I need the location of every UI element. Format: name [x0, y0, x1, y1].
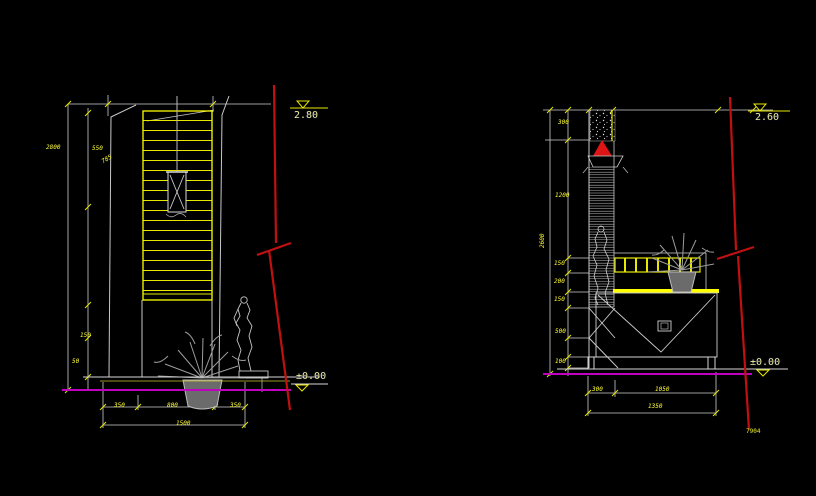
left-dim-total-height: 2800	[46, 145, 60, 151]
left-level-top-label: 2.80	[294, 111, 318, 121]
right-elevation	[543, 97, 790, 430]
right-dim-seg-7: 100	[555, 359, 566, 365]
left-level-top-symbol	[290, 101, 328, 108]
right-dim-seg-2: 1200	[555, 193, 569, 199]
left-dim-seg-a: 550	[92, 146, 103, 152]
counter-top	[613, 289, 719, 293]
plant-left	[154, 332, 246, 409]
right-dim-total-height: 2600	[540, 234, 546, 248]
right-level-floor-symbol	[757, 370, 769, 376]
right-dim-bottom-2: 1050	[655, 387, 669, 393]
cabinet-plinth	[588, 357, 715, 369]
left-dim-bottom-2: 800	[167, 403, 178, 409]
sheet-number: 7904	[746, 429, 760, 435]
left-level-floor-label: ±0.00	[296, 372, 326, 382]
left-dim-seg-d: 50	[72, 359, 79, 365]
cad-linework	[0, 0, 816, 496]
left-dim-bottom-1: 350	[114, 403, 125, 409]
cabinet-handle	[658, 321, 671, 331]
left-dim-bottom-total: 1500	[176, 421, 190, 427]
right-dim-seg-6: 500	[555, 329, 566, 335]
stipple-column	[590, 110, 615, 141]
left-red-datum-line	[257, 85, 291, 410]
left-level-floor-symbol	[291, 384, 328, 391]
right-dim-seg-1: 300	[558, 120, 569, 126]
right-red-datum-line	[717, 97, 754, 430]
left-dim-seg-c: 150	[80, 333, 91, 339]
right-dim-bottom-1: 300	[592, 387, 603, 393]
right-dim-bottom-total: 1350	[648, 404, 662, 410]
left-elevation	[62, 85, 328, 428]
right-dim-seg-4: 200	[554, 279, 565, 285]
right-dim-seg-5: 150	[554, 297, 565, 303]
cad-viewport[interactable]: 2.80 ±0.00 2800 550 785 150 50 350 800 3…	[0, 0, 816, 496]
left-dim-bottom-3: 350	[230, 403, 241, 409]
right-level-top-label: 2.60	[755, 113, 779, 123]
sconce-red-shade	[593, 140, 612, 156]
right-dim-seg-3: 150	[554, 261, 565, 267]
right-level-floor-label: ±0.00	[750, 358, 780, 368]
